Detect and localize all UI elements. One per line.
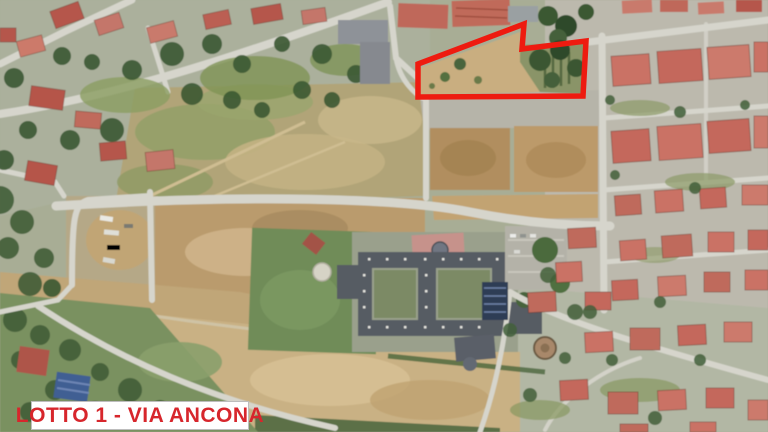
blue-roof-building	[53, 372, 90, 402]
lot-label: LOTTO 1 - VIA ANCONA	[31, 401, 249, 430]
satellite-imagery	[0, 0, 768, 432]
photo-layer	[0, 0, 768, 432]
aerial-map: LOTTO 1 - VIA ANCONA	[0, 0, 768, 432]
lot-label-text: LOTTO 1 - VIA ANCONA	[16, 404, 264, 428]
farm-house-roof	[16, 346, 49, 376]
